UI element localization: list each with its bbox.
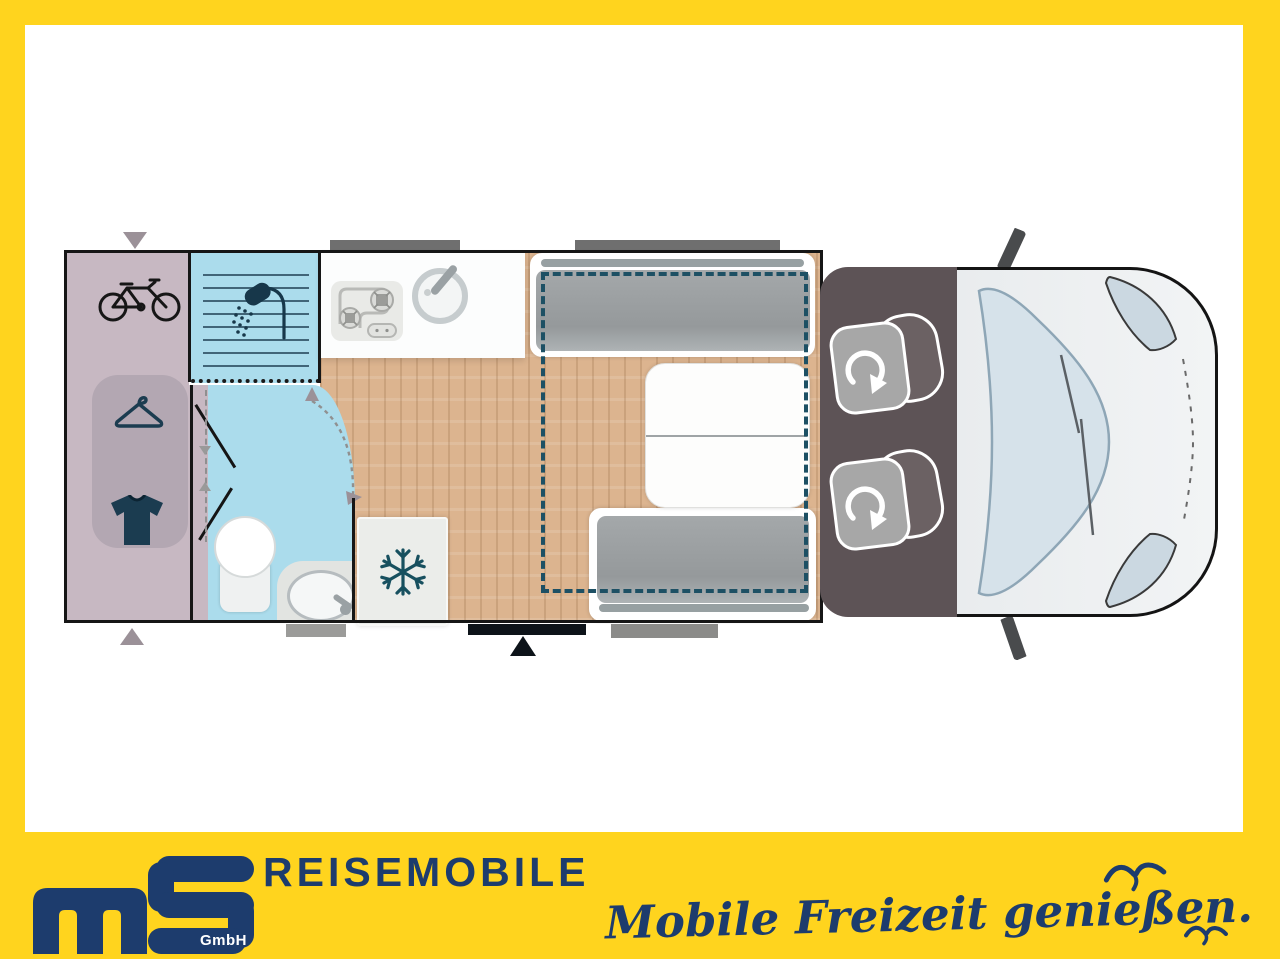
cab-seats bbox=[820, 267, 963, 617]
seagull-icon bbox=[1184, 920, 1228, 948]
logo-gmbh-text: GmbH bbox=[200, 932, 247, 949]
toilet bbox=[214, 516, 276, 578]
wall-shower-kitchen bbox=[318, 252, 321, 383]
hood-contour-dashed bbox=[1183, 359, 1193, 525]
basin-knob bbox=[340, 604, 351, 615]
listing-image: { "branding": { "logo_monogram": "ms", "… bbox=[0, 0, 1280, 959]
passenger-seat bbox=[829, 446, 947, 551]
side-mirror-icon bbox=[998, 615, 1028, 661]
snowflake-icon bbox=[377, 546, 429, 598]
van-front-details bbox=[957, 267, 1218, 617]
bicycle-icon bbox=[97, 277, 183, 323]
headlight-icon bbox=[1106, 534, 1176, 607]
entry-arrow-icon bbox=[510, 636, 536, 656]
garage-door-arrow-top bbox=[123, 232, 147, 249]
arrow-down-icon bbox=[199, 446, 211, 455]
driver-seat bbox=[829, 310, 947, 415]
garage-door-arrow-bottom bbox=[120, 628, 144, 645]
door-track-dashed bbox=[205, 390, 207, 542]
wall-bath-fridge bbox=[352, 498, 355, 622]
wall-garage-bath bbox=[190, 385, 193, 622]
hob-icon bbox=[330, 280, 404, 342]
wall-garage-shower bbox=[188, 252, 191, 382]
arrow-up-icon bbox=[199, 482, 211, 491]
footer-band: GmbH REISEMOBILE Mobile Freizeit genieße… bbox=[0, 832, 1280, 959]
seagull-icon bbox=[1101, 852, 1169, 898]
window-marker-bench bbox=[611, 624, 718, 638]
entry-door-marker bbox=[468, 624, 586, 635]
bench-backrest-bar bbox=[599, 604, 809, 612]
tshirt-icon bbox=[111, 495, 163, 545]
bench-backrest-bar bbox=[541, 259, 804, 267]
content-panel bbox=[25, 25, 1243, 832]
headlight-icon bbox=[1106, 277, 1176, 350]
logo-m bbox=[33, 888, 147, 954]
refrigerator bbox=[357, 517, 448, 626]
hanger-icon bbox=[114, 393, 164, 429]
drop-down-bed-outline bbox=[541, 272, 808, 593]
step-marker bbox=[286, 624, 346, 637]
company-wordmark: REISEMOBILE bbox=[263, 849, 589, 896]
shower-icon bbox=[226, 278, 298, 344]
windshield bbox=[979, 289, 1109, 595]
bath-door-swing-arc bbox=[300, 383, 362, 507]
